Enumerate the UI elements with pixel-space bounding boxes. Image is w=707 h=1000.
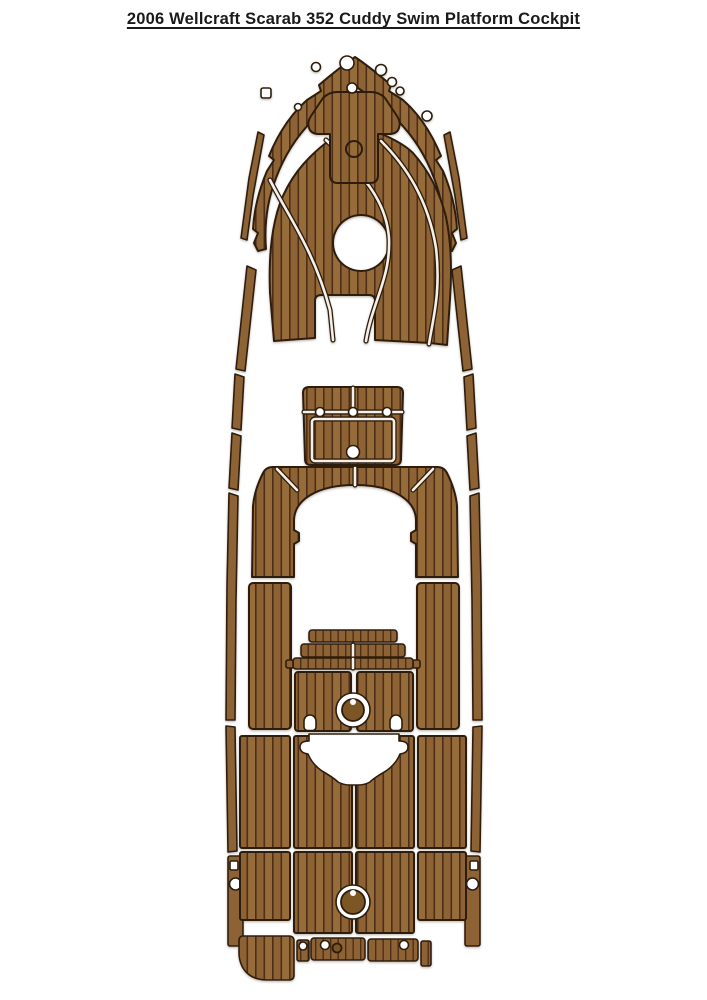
cockpit-floor-pads xyxy=(295,672,413,731)
product-image: 2006 Wellcraft Scarab 352 Cuddy Swim Pla… xyxy=(0,0,707,1000)
engine-step-pads xyxy=(286,630,420,669)
starboard-keyhole-cutout xyxy=(390,715,402,731)
bow-pad-group xyxy=(241,56,467,345)
deck-pad-diagram xyxy=(0,0,707,1000)
port-side-deck-pad xyxy=(249,583,291,729)
port-keyhole-cutout xyxy=(304,715,316,731)
stern-trim-strip-c xyxy=(368,939,418,961)
stern-corner-pad xyxy=(239,936,294,980)
cockpit-group xyxy=(249,387,459,731)
swim-platform-pads xyxy=(240,734,466,933)
starboard-side-deck-pad xyxy=(417,583,459,729)
stern-trim-pads xyxy=(239,936,431,980)
stern-trim-strip-d xyxy=(421,941,431,966)
